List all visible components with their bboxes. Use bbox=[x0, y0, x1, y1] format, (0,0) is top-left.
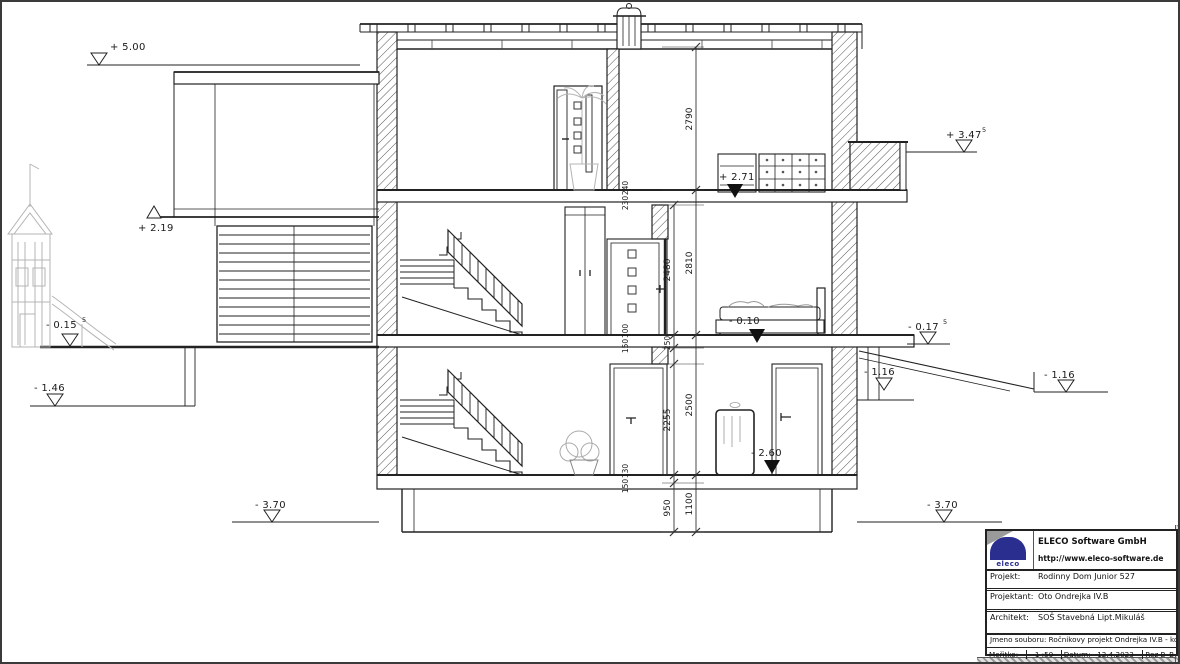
roof bbox=[360, 24, 862, 49]
eleco-logo: eleco bbox=[987, 531, 1034, 569]
balcony-post bbox=[900, 142, 906, 190]
louver-gate bbox=[217, 226, 372, 342]
file-row: Jmeno souboru: Ročnikovy projekt Ondrejk… bbox=[987, 635, 1176, 648]
scale-row: Meřitko: 1 :50 Datum: 12.4.2023 Rez B–B bbox=[987, 648, 1176, 661]
level-marker-open bbox=[1058, 380, 1074, 392]
right-wall bbox=[832, 32, 857, 475]
scale-value: 1 :50 bbox=[1026, 650, 1061, 659]
door-handle bbox=[781, 413, 791, 421]
elev-roof-left: + 5.00 bbox=[110, 42, 146, 53]
plant-art bbox=[560, 431, 599, 475]
drawing-sheet: 2790 2810 2500 1100 2480 2255 950 250 24… bbox=[0, 0, 1180, 664]
designer-row: Projektant: Oto Ondrejka IV.B bbox=[987, 591, 1176, 612]
elev-grade-left-lower: - 1.46 bbox=[34, 383, 65, 394]
level-marker-open bbox=[91, 53, 107, 65]
top-floor-door-and-palm bbox=[554, 86, 606, 190]
bed bbox=[716, 288, 825, 336]
elev-footing-left: - 3.70 bbox=[255, 500, 286, 511]
dim-low-junction-b: 150 bbox=[621, 479, 630, 494]
left-wall bbox=[377, 32, 397, 475]
elev-grade-left: - 0.15 bbox=[46, 320, 77, 331]
dim-foundation-b: 1100 bbox=[685, 492, 695, 515]
slab-bottom bbox=[377, 475, 857, 489]
level-marker-open bbox=[920, 332, 936, 344]
left-annex bbox=[30, 72, 379, 522]
elev-annex-roof: + 2.19 bbox=[138, 223, 174, 234]
level-marker-open bbox=[936, 510, 952, 522]
elev-terrace-right-far: - 1.16 bbox=[1044, 370, 1075, 381]
door-handle bbox=[626, 418, 636, 424]
stair-flight-low bbox=[400, 370, 522, 475]
level-marker-open bbox=[47, 394, 63, 406]
project-value: Rodinny Dom Junior 527 bbox=[1038, 572, 1173, 588]
date-value: 12.4.2023 bbox=[1095, 650, 1143, 659]
level-marker-open bbox=[264, 510, 280, 522]
level-marker-open bbox=[876, 378, 892, 390]
level-marker-open bbox=[956, 140, 972, 152]
elev-floor-mid: - 0.10 bbox=[729, 316, 760, 327]
dim-mid-clear: 2480 bbox=[663, 258, 673, 281]
dim-low-storey: 2500 bbox=[685, 393, 695, 416]
title-block-header: eleco ELECO Software GmbH http://www.ele… bbox=[987, 531, 1176, 571]
partition-top-floor bbox=[607, 49, 619, 190]
architect-row: Architekt: SOŠ Stavebná Lipt.Mikuláš bbox=[987, 612, 1176, 635]
stair-flight-mid bbox=[400, 230, 522, 335]
logo-text: eleco bbox=[990, 560, 1026, 568]
door-low-1 bbox=[610, 364, 667, 475]
door-mid-floor bbox=[607, 239, 667, 335]
dim-mid-junction-b: 150 bbox=[621, 339, 630, 354]
dim-top-storey: 2790 bbox=[685, 107, 695, 130]
slab-top bbox=[377, 190, 907, 202]
elev-grade-right-sup: 5 bbox=[943, 318, 947, 326]
dim-mid-storey: 2810 bbox=[685, 251, 695, 274]
architect-value: SOŠ Stavebná Lipt.Mikuláš bbox=[1038, 613, 1173, 633]
file-value: Ročnikovy projekt Ondrejka IV.B - kopia bbox=[1049, 635, 1176, 644]
elev-floor-low: - 2.60 bbox=[751, 448, 782, 459]
slab-mid bbox=[377, 335, 914, 347]
pillow-art bbox=[728, 302, 814, 307]
dim-low-clear: 2255 bbox=[663, 409, 673, 432]
elev-grade-right: - 0.17 bbox=[908, 322, 939, 333]
architect-label: Architekt: bbox=[990, 613, 1038, 633]
dim-top-junction-b: 230 bbox=[621, 196, 630, 211]
dim-mid-junction-a: 100 bbox=[621, 324, 630, 339]
balcony-wall bbox=[850, 142, 900, 190]
company-url[interactable]: http://www.eleco-software.de bbox=[1038, 554, 1172, 563]
project-label: Projekt: bbox=[990, 572, 1038, 588]
dim-foundation-a: 950 bbox=[663, 499, 673, 516]
elev-balcony-right-sup: 5 bbox=[982, 126, 986, 134]
dimension-chains bbox=[662, 43, 704, 536]
designer-label: Projektant: bbox=[990, 592, 1038, 609]
dresser bbox=[759, 154, 825, 192]
level-marker-open bbox=[147, 206, 161, 218]
elev-balcony-right: + 3.47 bbox=[946, 130, 982, 141]
boiler bbox=[716, 403, 754, 476]
wardrobe bbox=[565, 207, 605, 335]
section-name: Rez B–B bbox=[1143, 650, 1176, 659]
date-label: Datum: bbox=[1062, 650, 1095, 659]
dim-mid-junction-c: 250 bbox=[663, 336, 672, 351]
scale-label: Meřitko: bbox=[987, 650, 1026, 659]
level-marker-open bbox=[62, 334, 78, 346]
title-block: eleco ELECO Software GmbH http://www.ele… bbox=[985, 529, 1178, 656]
logo-dome-icon bbox=[990, 537, 1026, 561]
level-marker-filled bbox=[764, 460, 780, 474]
elev-footing-right: - 3.70 bbox=[927, 500, 958, 511]
chimney bbox=[613, 4, 646, 50]
dim-low-junction-a: 130 bbox=[621, 464, 630, 479]
door-handle bbox=[656, 285, 664, 293]
designer-value: Oto Ondrejka IV.B bbox=[1038, 592, 1173, 609]
stair-railing bbox=[448, 230, 522, 326]
project-row: Projekt: Rodinny Dom Junior 527 bbox=[987, 571, 1176, 591]
elev-floor-top: + 2.71 bbox=[719, 172, 755, 183]
lintel-mid bbox=[652, 205, 668, 239]
elev-terrace-right-near: - 1.16 bbox=[864, 367, 895, 378]
foundation bbox=[402, 489, 832, 532]
elev-grade-left-sup: 5 bbox=[82, 316, 86, 324]
file-label: Jmeno souboru: bbox=[990, 635, 1046, 644]
company-name: ELECO Software GmbH bbox=[1038, 537, 1172, 547]
palm-plant-art bbox=[558, 86, 606, 190]
dim-top-junction-a: 240 bbox=[621, 181, 630, 196]
